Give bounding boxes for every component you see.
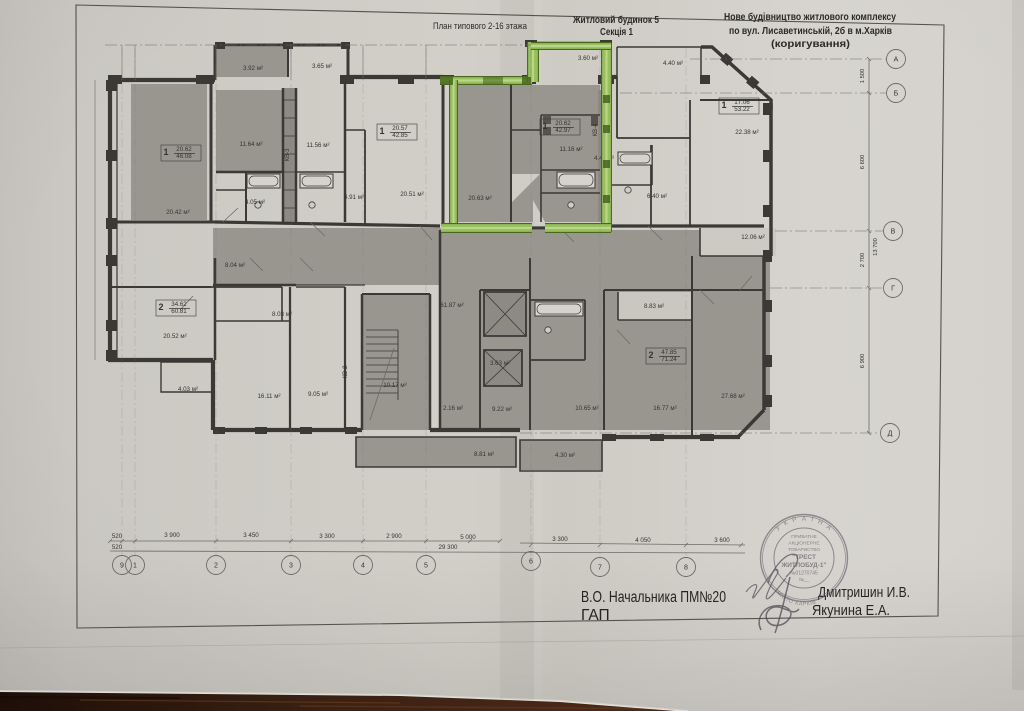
svg-text:В.О. Начальника ПМ№20: В.О. Начальника ПМ№20 <box>581 589 726 606</box>
svg-text:Дмитришин И.В.: Дмитришин И.В. <box>818 585 910 601</box>
svg-text:(коригування): (коригування) <box>771 38 850 50</box>
svg-text:План типового 2-16 этажа: План типового 2-16 этажа <box>433 21 528 32</box>
svg-text:Секція 1: Секція 1 <box>600 27 633 38</box>
svg-text:Нове будівництво житлового ком: Нове будівництво житлового комплексу <box>724 11 896 23</box>
svg-text:Якунина Е.А.: Якунина Е.А. <box>812 603 890 619</box>
svg-text:ПРИВАТНЕ: ПРИВАТНЕ <box>791 534 817 540</box>
svg-text:ТОВАРИСТВО: ТОВАРИСТВО <box>788 547 821 553</box>
svg-text:АКЦІОНЕРНЕ: АКЦІОНЕРНЕ <box>788 541 819 547</box>
svg-text:ЖИТЛОБУД-1": ЖИТЛОБУД-1" <box>781 562 827 569</box>
svg-text:по вул. Лисаветинській, 2б в м: по вул. Лисаветинській, 2б в м.Харків <box>729 25 892 37</box>
svg-text:ГАП: ГАП <box>581 607 610 624</box>
svg-text:№__: №__ <box>799 577 809 582</box>
svg-text:№01270745: №01270745 <box>790 571 818 577</box>
svg-text:Житловий будинок 5: Житловий будинок 5 <box>572 14 659 26</box>
